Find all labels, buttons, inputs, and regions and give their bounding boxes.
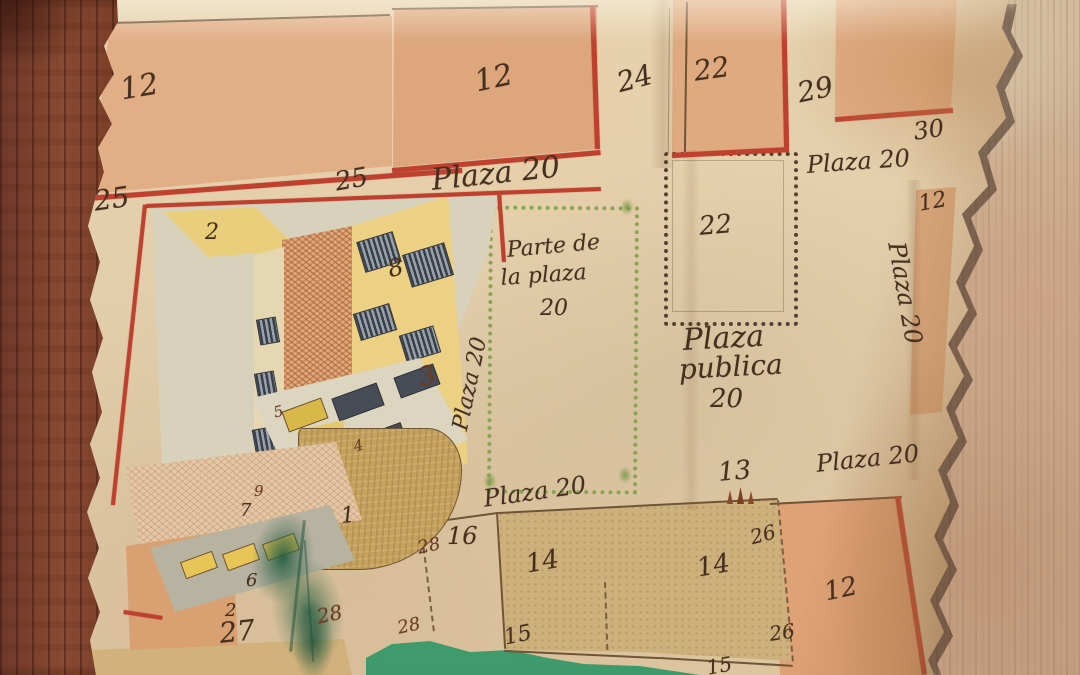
label-plaza-publica-2: publica — [678, 351, 783, 384]
label-plot-12-bottomright: 12 — [822, 573, 860, 605]
label-plot-12-topleft: 12 — [118, 69, 161, 105]
label-plot-26-a: 26 — [748, 521, 778, 547]
label-plot-25-mid: 25 — [333, 164, 370, 195]
label-plot-2-courtyard: 2 — [205, 222, 219, 244]
label-plot-22-center: 22 — [698, 211, 733, 240]
label-plot-9: 9 — [254, 484, 264, 499]
label-plot-14-a: 14 — [524, 546, 561, 577]
label-plot-14-b: 14 — [695, 550, 732, 581]
label-plot-26-b: 26 — [768, 620, 796, 643]
label-parte-3: 20 — [540, 298, 568, 320]
label-plot-13: 13 — [717, 457, 752, 486]
label-plot-30: 30 — [912, 116, 946, 144]
label-plot-12-topcenter: 12 — [472, 60, 516, 97]
label-plot-15-a: 15 — [502, 622, 534, 649]
label-plot-7: 7 — [240, 502, 251, 520]
label-plot-28-b: 28 — [396, 615, 422, 637]
label-plot-28-c: 28 — [416, 535, 442, 557]
label-plot-12-rightstrip: 12 — [917, 189, 948, 216]
label-plot-28-a: 28 — [315, 602, 344, 627]
parchment-sheet: 12 25 25 12 24 22 29 30 Plaza 20 12 Plaz… — [0, 0, 1080, 675]
label-plot-22-top: 22 — [692, 53, 731, 86]
label-parte-2: la plaza — [500, 262, 587, 290]
label-plaza-publica-3: 20 — [710, 386, 743, 412]
historical-map-photo: 12 25 25 12 24 22 29 30 Plaza 20 12 Plaz… — [0, 0, 1080, 675]
label-street-29: 29 — [795, 73, 836, 108]
label-plot-27: 27 — [218, 616, 256, 648]
label-plot-1: 1 — [340, 505, 356, 528]
label-plaza20-topright: Plaza 20 — [806, 146, 911, 177]
label-plot-16: 16 — [447, 524, 478, 548]
label-plot-6: 6 — [246, 572, 257, 590]
label-plot-15-b: 15 — [705, 654, 734, 675]
